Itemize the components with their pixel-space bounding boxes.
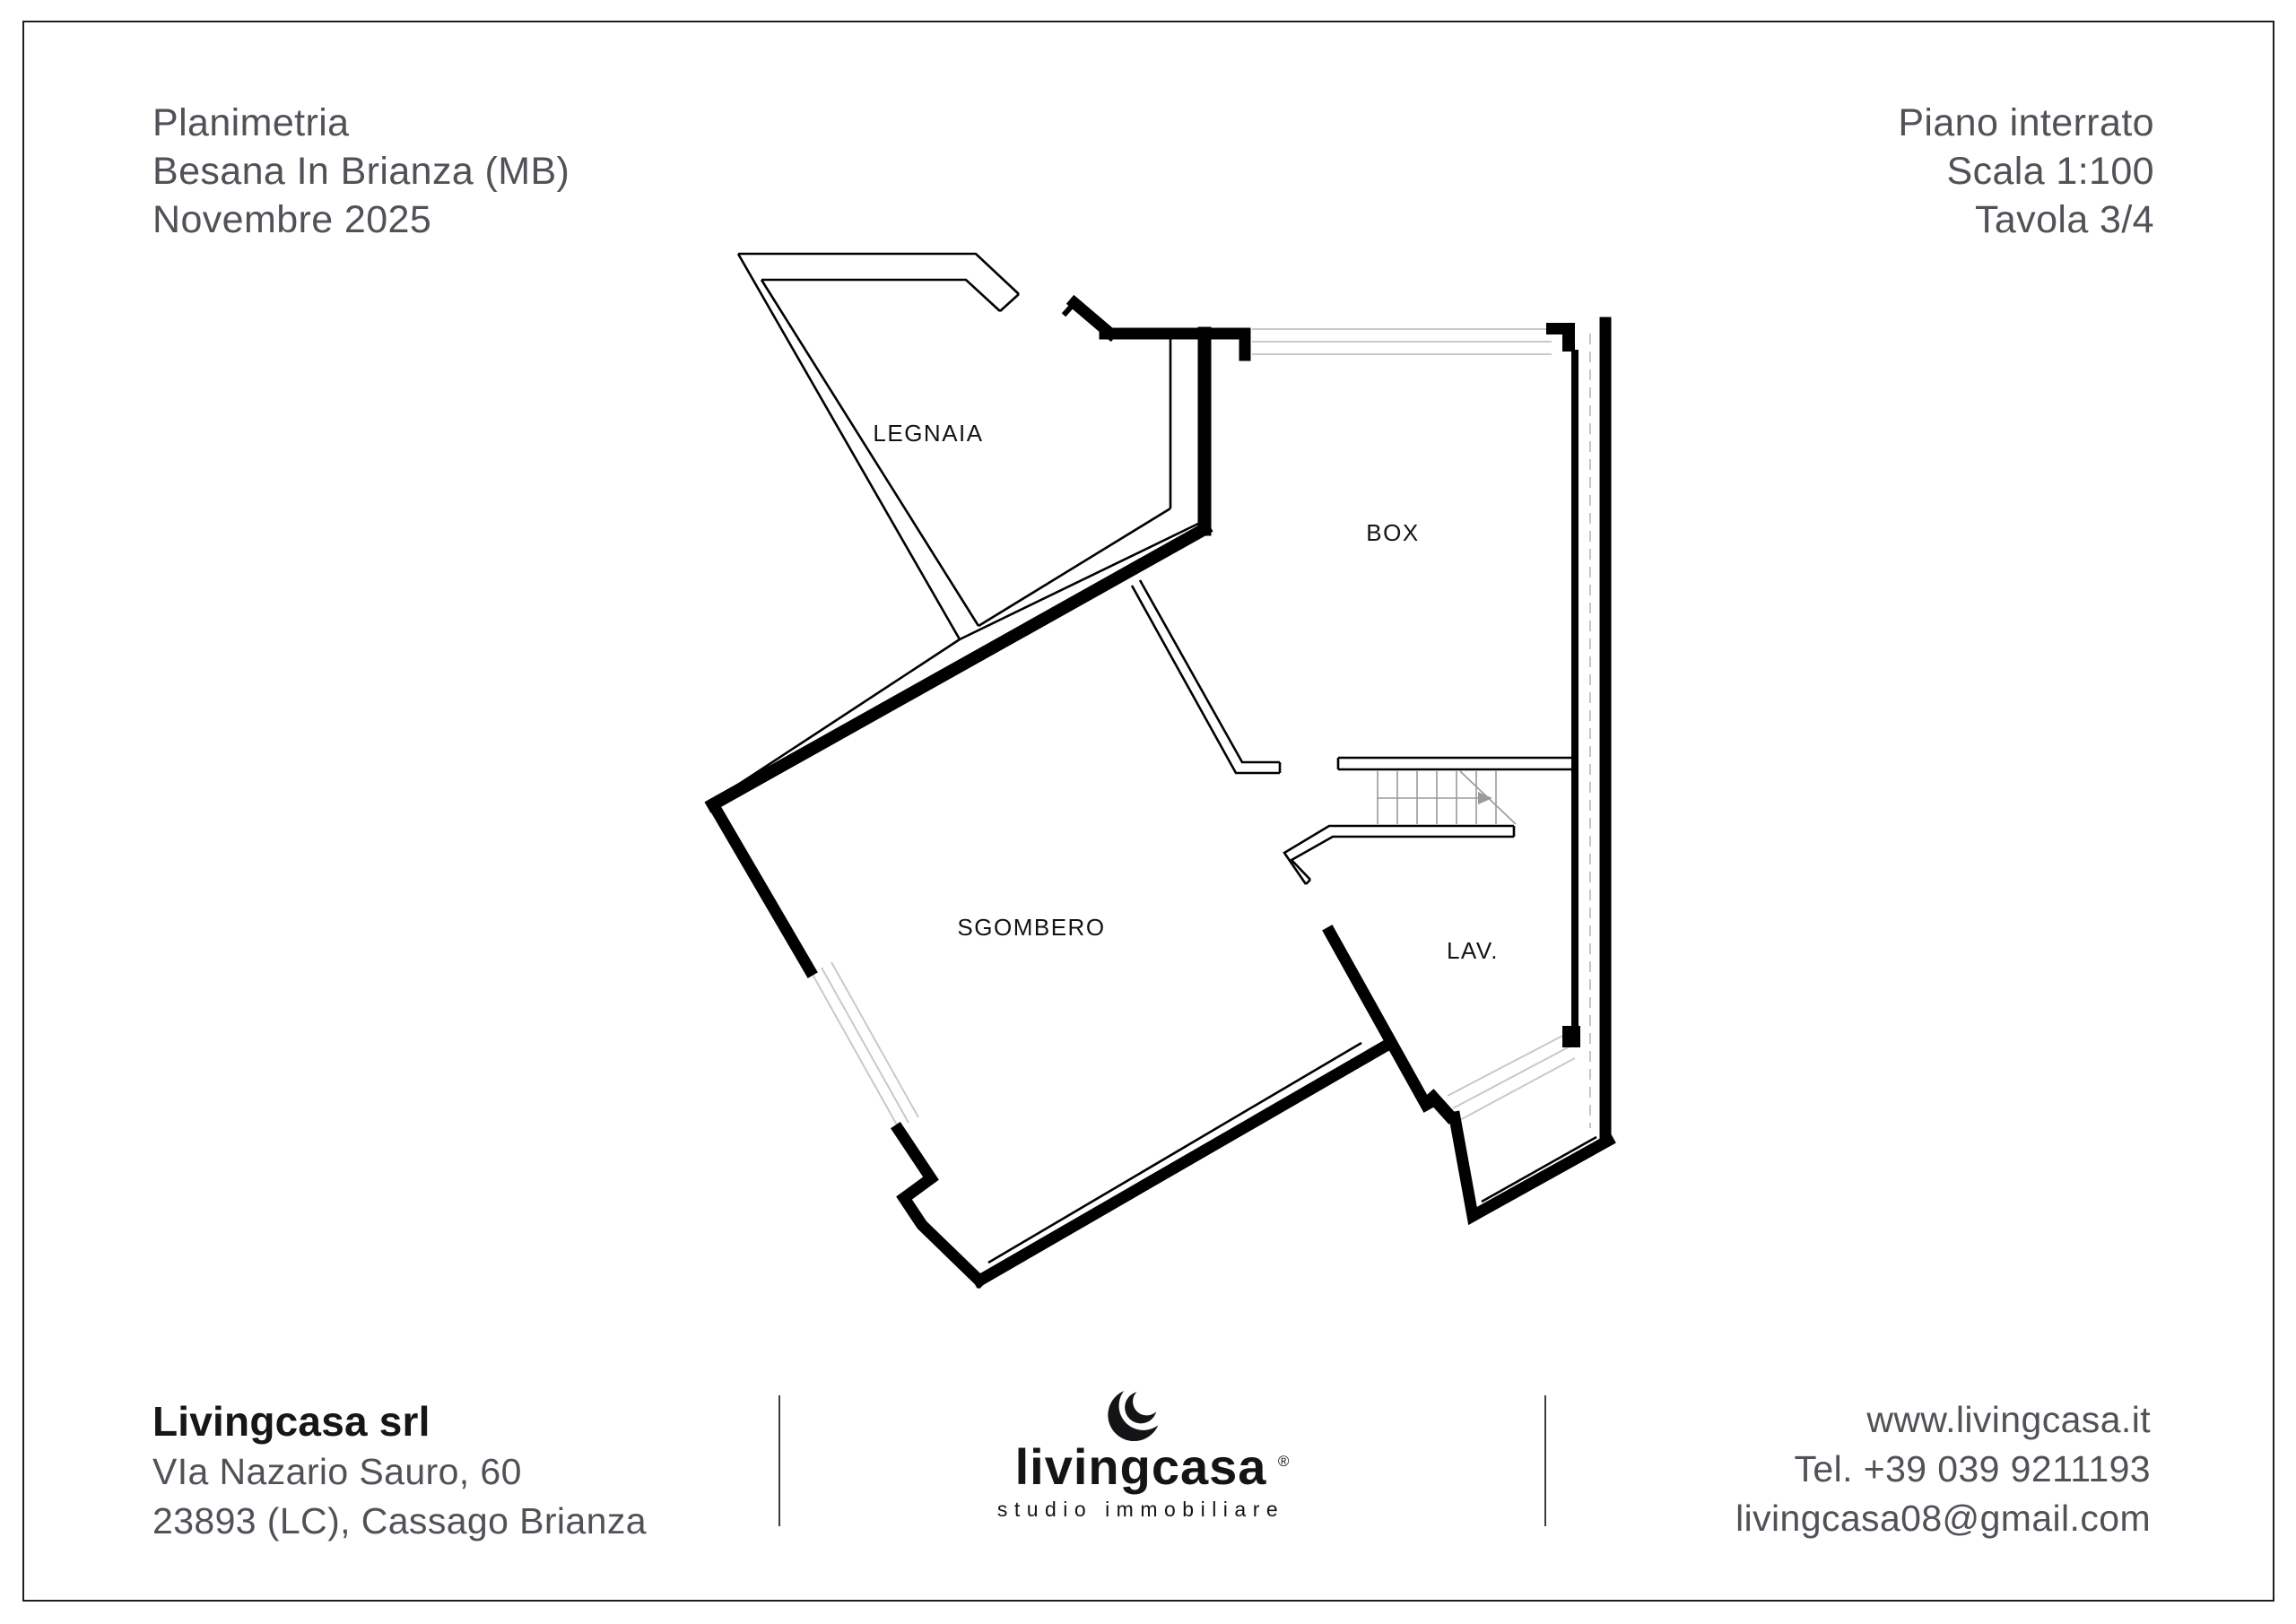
logo-tagline: studio immobiliare [979, 1498, 1302, 1522]
stairs-direction-arrow [1478, 792, 1492, 804]
phone-number: Tel. +39 039 9211193 [1735, 1445, 2151, 1494]
company-name: Livingcasa srl [152, 1395, 647, 1447]
stairs [1378, 771, 1516, 824]
logo-wordmark: livingcasa® [1015, 1442, 1267, 1492]
company-address-street: VIa Nazario Sauro, 60 [152, 1447, 647, 1497]
room-label-sgombero: SGOMBERO [957, 914, 1105, 941]
thick-walls [713, 303, 1608, 1281]
footer-divider-right [1544, 1395, 1546, 1526]
footer-company-block: Livingcasa srl VIa Nazario Sauro, 60 238… [152, 1395, 647, 1546]
window-jamb-block [1562, 1026, 1580, 1047]
website-link[interactable]: www.livingcasa.it [1735, 1395, 2151, 1445]
room-label-box: BOX [1366, 519, 1419, 546]
footer-contact-block: www.livingcasa.it Tel. +39 039 9211193 l… [1735, 1395, 2151, 1543]
registered-trademark-symbol: ® [1278, 1437, 1291, 1487]
floor-plan-drawing: LEGNAIA BOX SGOMBERO LAV. [0, 0, 2296, 1624]
footer-divider-left [778, 1395, 780, 1526]
room-label-lav: LAV. [1447, 937, 1499, 964]
garage-jamb-block [1546, 323, 1575, 352]
logo-wordmark-text: livingcasa [1015, 1438, 1267, 1495]
room-label-legnaia: LEGNAIA [873, 420, 983, 447]
email-address[interactable]: livingcasa08@gmail.com [1735, 1494, 2151, 1543]
window-opening-southeast [1448, 1033, 1575, 1121]
garage-door-opening [1252, 329, 1552, 354]
livingcasa-logo: livingcasa® studio immobiliare [979, 1386, 1302, 1522]
planimetria-page: Planimetria Besana In Brianza (MB) Novem… [0, 0, 2296, 1624]
crescent-moon-icon [1098, 1386, 1184, 1442]
thin-walls [717, 254, 1596, 1263]
window-opening-southwest [812, 962, 918, 1128]
company-address-city: 23893 (LC), Cassago Brianza [152, 1497, 647, 1546]
